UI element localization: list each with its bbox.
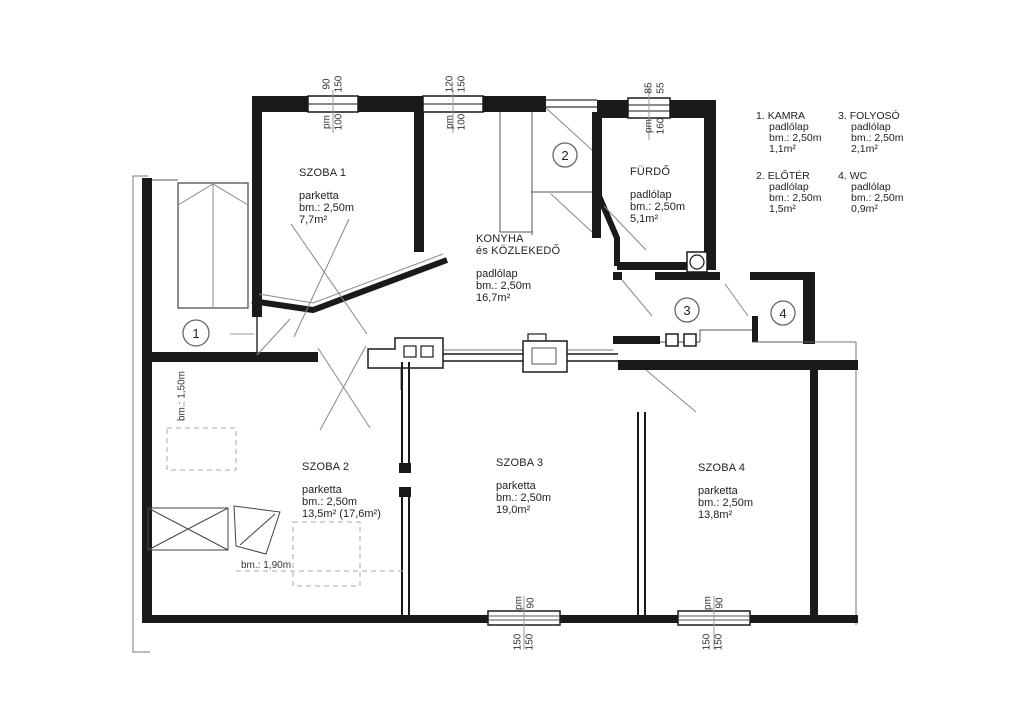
dim-win1-pm: pm: [322, 115, 333, 129]
room-area: 5,1m²: [630, 213, 685, 225]
legend-item-folyoso: 3. FOLYOSÓ padlólap bm.: 2,50m 2,1m²: [838, 111, 904, 155]
dim-bwin1-sill-a: 150: [513, 634, 524, 651]
legend-num: 4.: [838, 170, 847, 182]
marker-folyoso: 3: [683, 303, 690, 318]
boiler-icon: [687, 252, 707, 272]
room-name: SZOBA 3: [496, 457, 551, 469]
kitchen-counter: [368, 338, 613, 390]
room-name: FÜRDŐ: [630, 166, 685, 178]
label-konyha: KONYHA és KÖZLEKEDŐ padlólap bm.: 2,50m …: [476, 233, 560, 304]
label-furdo: FÜRDŐ padlólap bm.: 2,50m 5,1m²: [630, 166, 685, 225]
furniture-bed: [148, 508, 228, 550]
dim-niche-height: bm.: 1,50m: [177, 371, 188, 421]
room-floor: parketta: [496, 480, 551, 492]
kitchen-sink: [523, 334, 567, 372]
dim-win3-width: 85: [644, 82, 655, 93]
room-height: bm.: 2,50m: [299, 202, 354, 214]
furniture-chair: [234, 506, 280, 554]
room-area: 13,5m² (17,6m²): [302, 508, 381, 520]
konyha-niche: [500, 112, 532, 232]
dim-win1-height: 150: [334, 76, 345, 93]
dim-win3-height: 55: [656, 82, 667, 93]
legend-area: 2,1m²: [851, 144, 904, 155]
room-height: bm.: 2,50m: [476, 280, 560, 292]
room-floor: padlólap: [630, 189, 685, 201]
dim-win2-height: 150: [457, 76, 468, 93]
dim-bwin1-parapet: 90: [526, 597, 537, 608]
dim-bwin1-sill-b: 150: [525, 634, 536, 651]
room-height: bm.: 2,50m: [698, 497, 753, 509]
floor-plan: 1 2 3 4 SZOBA 1 parketta bm.: 2,50m 7,7m…: [0, 0, 1024, 727]
room-area: 13,8m²: [698, 509, 753, 521]
room-name: SZOBA 4: [698, 462, 753, 474]
dim-bwin1-pm: pm: [514, 596, 525, 610]
room-floor: parketta: [302, 484, 381, 496]
dim-bed-length: bm.: 1,90m: [241, 560, 291, 571]
legend-item-eloter: 2. ELŐTÉR padlólap bm.: 2,50m 1,5m²: [756, 171, 822, 215]
dim-win1-parapet: 100: [334, 114, 345, 131]
dim-bwin2-pm: pm: [703, 596, 714, 610]
dim-win2-pm: pm: [445, 115, 456, 129]
legend-num: 1.: [756, 110, 765, 122]
middle-wall: [142, 346, 858, 430]
partition-szoba3-4: [636, 362, 696, 617]
marker-kamra: 1: [192, 326, 199, 341]
room-height: bm.: 2,50m: [630, 201, 685, 213]
wardrobe: [178, 183, 248, 308]
dim-bwin2-sill-b: 150: [714, 634, 725, 651]
label-szoba3: SZOBA 3 parketta bm.: 2,50m 19,0m²: [496, 457, 551, 516]
room-height: bm.: 2,50m: [496, 492, 551, 504]
dim-win3-pm: pm: [644, 119, 655, 133]
room-name: SZOBA 1: [299, 167, 354, 179]
partition-szoba2-3: [399, 362, 411, 617]
room-floor: parketta: [299, 190, 354, 202]
entrance-door: [546, 100, 597, 107]
corridor-cabinets: [666, 334, 696, 346]
marker-eloter: 2: [561, 148, 568, 163]
label-szoba1: SZOBA 1 parketta bm.: 2,50m 7,7m²: [299, 167, 354, 226]
legend-area: 1,1m²: [769, 144, 822, 155]
legend-area: 1,5m²: [769, 204, 822, 215]
legend-area: 0,9m²: [851, 204, 904, 215]
room-name: SZOBA 2: [302, 461, 381, 473]
dim-win2-parapet: 100: [457, 114, 468, 131]
dim-win3-parapet: 160: [656, 118, 667, 135]
dim-bwin2-sill-a: 150: [702, 634, 713, 651]
dim-win1-width: 90: [322, 78, 333, 89]
legend-item-kamra: 1. KAMRA padlólap bm.: 2,50m 1,1m²: [756, 111, 822, 155]
room-area: 16,7m²: [476, 292, 560, 304]
legend-item-wc: 4. WC padlólap bm.: 2,50m 0,9m²: [838, 171, 904, 215]
room-name-2: és KÖZLEKEDŐ: [476, 245, 560, 257]
legend-num: 3.: [838, 110, 847, 122]
room-area: 7,7m²: [299, 214, 354, 226]
legend-num: 2.: [756, 170, 765, 182]
marker-wc: 4: [779, 306, 786, 321]
label-szoba2: SZOBA 2 parketta bm.: 2,50m 13,5m² (17,6…: [302, 461, 381, 520]
eloter-walls: [532, 108, 601, 238]
label-szoba4: SZOBA 4 parketta bm.: 2,50m 13,8m²: [698, 462, 753, 521]
dim-win2-width: 120: [445, 76, 456, 93]
room-height: bm.: 2,50m: [302, 496, 381, 508]
room-floor: padlólap: [476, 268, 560, 280]
room-area: 19,0m²: [496, 504, 551, 516]
dim-bwin2-parapet: 90: [715, 597, 726, 608]
room-floor: parketta: [698, 485, 753, 497]
room-name: KONYHA: [476, 233, 560, 245]
